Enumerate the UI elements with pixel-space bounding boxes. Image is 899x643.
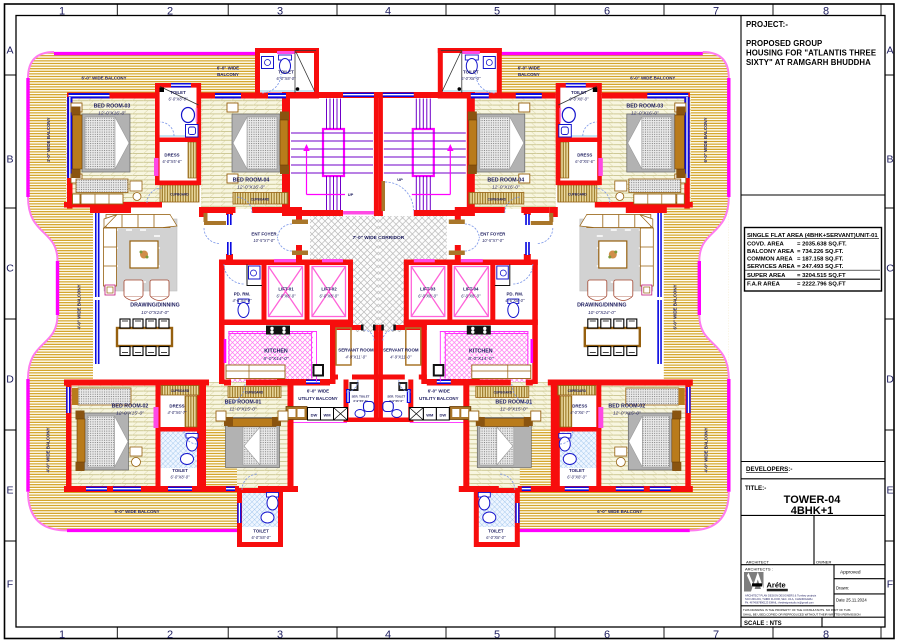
svg-text:11'-0"X15'-0": 11'-0"X15'-0" — [229, 407, 257, 413]
svg-text:SER. TOILET: SER. TOILET — [352, 395, 370, 399]
svg-text:LIFT-04: LIFT-04 — [463, 287, 479, 292]
svg-text:3: 3 — [277, 629, 283, 641]
svg-text:4'-9"X11'-0": 4'-9"X11'-0" — [345, 355, 367, 360]
svg-text:BED ROOM-04: BED ROOM-04 — [233, 178, 270, 184]
svg-text:ENT FOYER: ENT FOYER — [251, 232, 277, 237]
svg-text:BED ROOM-02: BED ROOM-02 — [112, 404, 149, 410]
svg-text:= 247.493 SQ.FT.: = 247.493 SQ.FT. — [797, 264, 844, 270]
svg-text:= 2222.796 SQ.FT: = 2222.796 SQ.FT — [797, 282, 846, 288]
svg-text:10'-5"X7'-0": 10'-5"X7'-0" — [482, 238, 504, 243]
svg-text:PD. RM.: PD. RM. — [234, 292, 251, 297]
svg-text:4'-0"X6'-7": 4'-0"X6'-7" — [570, 410, 590, 415]
svg-text:5: 5 — [494, 629, 500, 641]
svg-text:UTILITY BALCONY: UTILITY BALCONY — [298, 396, 338, 401]
svg-text:A: A — [886, 45, 893, 57]
svg-text:Aréte: Aréte — [767, 581, 786, 590]
svg-text:F: F — [887, 579, 893, 591]
svg-text:10'-0"X24'-0": 10'-0"X24'-0" — [588, 310, 616, 316]
svg-text:TOILET: TOILET — [569, 468, 585, 473]
svg-text:12'-0"X16'-0": 12'-0"X16'-0" — [98, 111, 126, 117]
svg-text:8'-0"X14'-0": 8'-0"X14'-0" — [468, 356, 493, 362]
svg-text:8'-0"X14'-0": 8'-0"X14'-0" — [264, 356, 289, 362]
svg-text:6'-0" WIDE BALCONY: 6'-0" WIDE BALCONY — [114, 509, 159, 514]
svg-text:4'-0" WIDE BALCONY: 4'-0" WIDE BALCONY — [46, 427, 51, 472]
svg-text:D: D — [886, 374, 894, 386]
svg-text:KITCHEN: KITCHEN — [264, 349, 288, 355]
svg-text:SCALE : NTS: SCALE : NTS — [744, 621, 782, 627]
svg-text:= 3204.515 SQ.FT: = 3204.515 SQ.FT — [797, 273, 846, 279]
svg-text:Drawn:: Drawn: — [836, 586, 849, 591]
svg-text:4BHK+1: 4BHK+1 — [791, 505, 834, 517]
svg-text:PROPOSED GROUP: PROPOSED GROUP — [746, 39, 822, 48]
svg-text:3'-9"X5'-0": 3'-9"X5'-0" — [389, 399, 404, 403]
svg-text:SUPER AREA: SUPER AREA — [747, 273, 786, 279]
svg-text:8: 8 — [823, 6, 829, 18]
svg-text:4: 4 — [385, 629, 391, 641]
svg-text:7: 7 — [713, 629, 719, 641]
svg-text:1: 1 — [59, 629, 65, 641]
svg-text:E: E — [6, 485, 13, 497]
svg-text:PD. RM.: PD. RM. — [507, 292, 524, 297]
svg-text:LIFT-01: LIFT-01 — [278, 287, 294, 292]
svg-text:6'-0"X8'-0": 6'-0"X8'-0" — [486, 535, 506, 540]
svg-text:4'-9"X11'-0": 4'-9"X11'-0" — [390, 355, 412, 360]
svg-text:ARCHITECT PLAN DESIGN DESIGNE: ARCHITECT PLAN DESIGN DESIGNERS & Turnke… — [745, 594, 817, 598]
svg-text:6'-0"X8'-0": 6'-0"X8'-0" — [418, 294, 438, 299]
svg-text:F: F — [7, 579, 13, 591]
svg-text:6'-0"X8'-0": 6'-0"X8'-0" — [276, 76, 296, 81]
svg-text:6'-0"X5'-6": 6'-0"X5'-6" — [162, 159, 182, 164]
svg-text:DW: DW — [311, 413, 318, 418]
svg-text:12'-0"X15'-0": 12'-0"X15'-0" — [116, 411, 144, 417]
svg-text:LIFT-02: LIFT-02 — [321, 287, 337, 292]
svg-text:TITLE:-: TITLE:- — [745, 485, 766, 492]
svg-text:6'-0" WIDE: 6'-0" WIDE — [217, 66, 239, 71]
svg-text:10'-5"X7'-0": 10'-5"X7'-0" — [253, 238, 275, 243]
svg-text:4'-0" WIDE BALCONY: 4'-0" WIDE BALCONY — [77, 284, 82, 329]
svg-text:ARCHITECTS :: ARCHITECTS : — [745, 567, 773, 572]
svg-text:6'-0" WIDE BALCONY: 6'-0" WIDE BALCONY — [81, 76, 126, 81]
svg-text:11'-0"X15'-0": 11'-0"X15'-0" — [500, 407, 528, 413]
svg-text:2: 2 — [167, 629, 173, 641]
svg-text:BED ROOM-01: BED ROOM-01 — [495, 400, 532, 406]
svg-text:= 734.226 SQ.FT.: = 734.226 SQ.FT. — [797, 249, 844, 255]
svg-text:CUPBOARD: CUPBOARD — [568, 193, 587, 197]
svg-text:12'-0"X16'-0": 12'-0"X16'-0" — [631, 111, 659, 117]
svg-text:4'-6"X8'-0": 4'-6"X8'-0" — [232, 298, 252, 303]
svg-text:COMMON AREA: COMMON AREA — [747, 257, 793, 263]
svg-text:WM: WM — [323, 413, 331, 418]
svg-text:CUPBOARD: CUPBOARD — [494, 390, 513, 394]
svg-text:C: C — [886, 263, 894, 275]
svg-text:6'-0" WIDE BALCONY: 6'-0" WIDE BALCONY — [630, 76, 675, 81]
svg-text:BALCONY: BALCONY — [518, 72, 540, 77]
svg-text:DRESS: DRESS — [577, 153, 592, 158]
svg-text:C: C — [6, 263, 14, 275]
svg-text:6'-0" WIDE: 6'-0" WIDE — [518, 66, 540, 71]
svg-text:8: 8 — [823, 629, 829, 641]
svg-text:6'-0" WIDE BALCONY: 6'-0" WIDE BALCONY — [597, 509, 642, 514]
svg-text:DRAWING/DINNING: DRAWING/DINNING — [577, 303, 626, 309]
svg-text:SINGLE FLAT AREA (4BHK+SERVANT: SINGLE FLAT AREA (4BHK+SERVANT)UNIT-01 — [747, 233, 878, 239]
svg-text:6'-0" WIDE: 6'-0" WIDE — [307, 389, 329, 394]
svg-text:6'-0"X8'-0": 6'-0"X8'-0" — [461, 294, 481, 299]
svg-text:10'-0"X24'-0": 10'-0"X24'-0" — [141, 310, 169, 316]
svg-text:6'-0" WIDE BALCONY: 6'-0" WIDE BALCONY — [703, 117, 708, 162]
svg-text:KITCHEN: KITCHEN — [469, 349, 493, 355]
svg-text:3'-9"X5'-0": 3'-9"X5'-0" — [353, 399, 368, 403]
svg-text:5: 5 — [494, 6, 500, 18]
svg-text:6'-0"X8'-0": 6'-0"X8'-0" — [168, 97, 188, 102]
svg-text:TOILET: TOILET — [488, 529, 504, 534]
svg-text:CUPBOARD: CUPBOARD — [568, 389, 587, 393]
svg-text:UP: UP — [348, 192, 354, 197]
svg-text:Ph. 4674567890123 EMAIL: thed: Ph. 4674567890123 EMAIL: thedesignstudio… — [745, 601, 814, 605]
svg-text:6'-0"X8'-0": 6'-0"X8'-0" — [170, 475, 190, 480]
svg-text:4'-0"X6'-7": 4'-0"X6'-7" — [167, 410, 187, 415]
svg-text:Approved: Approved — [840, 570, 861, 576]
svg-text:ARCHITECT: ARCHITECT — [746, 559, 769, 564]
svg-text:TOILET: TOILET — [463, 70, 479, 75]
svg-text:DRESS: DRESS — [169, 404, 184, 409]
svg-text:HOUSING FOR "ATLANTIS THREE: HOUSING FOR "ATLANTIS THREE — [746, 49, 876, 58]
svg-text:SCO 200-201, THIRD FLOOR, SEC.: SCO 200-201, THIRD FLOOR, SEC. 34-A, CHA… — [745, 597, 813, 601]
svg-text:B: B — [886, 154, 893, 166]
svg-text:CUPBOARD: CUPBOARD — [488, 198, 507, 202]
svg-text:4: 4 — [385, 6, 391, 18]
svg-text:6: 6 — [604, 629, 610, 641]
svg-text:UP: UP — [397, 177, 403, 182]
svg-text:3: 3 — [277, 6, 283, 18]
svg-text:4'-0" WIDE BALCONY: 4'-0" WIDE BALCONY — [46, 117, 51, 162]
svg-text:BALCONY AREA: BALCONY AREA — [747, 249, 795, 255]
svg-text:6: 6 — [604, 6, 610, 18]
svg-text:WM: WM — [426, 413, 434, 418]
svg-text:ENT FOYER: ENT FOYER — [480, 232, 506, 237]
svg-text:6'-0"X8'-0": 6'-0"X8'-0" — [569, 97, 589, 102]
svg-text:DRESS: DRESS — [572, 404, 587, 409]
svg-text:CUPBOARD: CUPBOARD — [170, 193, 189, 197]
svg-text:DRESS: DRESS — [164, 153, 179, 158]
svg-text:CUPBOARD: CUPBOARD — [251, 198, 270, 202]
svg-text:7: 7 — [713, 6, 719, 18]
svg-text:6'-0" WIDE BALCONY: 6'-0" WIDE BALCONY — [672, 284, 677, 329]
svg-text:A: A — [6, 45, 13, 57]
svg-text:TOILET: TOILET — [253, 529, 269, 534]
svg-text:TOILET: TOILET — [278, 70, 294, 75]
svg-text:CUPBOARD: CUPBOARD — [171, 389, 190, 393]
svg-text:SERVANT ROOM: SERVANT ROOM — [383, 348, 419, 353]
svg-text:SER. TOILET: SER. TOILET — [387, 395, 405, 399]
svg-text:2: 2 — [167, 6, 173, 18]
svg-text:TOILET: TOILET — [172, 468, 188, 473]
svg-text:6'-0"X8'-0": 6'-0"X8'-0" — [251, 535, 271, 540]
svg-text:12'-0"X16'-0": 12'-0"X16'-0" — [492, 185, 520, 191]
svg-text:BED ROOM-04: BED ROOM-04 — [487, 178, 524, 184]
svg-text:BED ROOM-01: BED ROOM-01 — [225, 400, 262, 406]
svg-text:SERVANT ROOM: SERVANT ROOM — [338, 348, 374, 353]
svg-text:6'-0"X8'-0": 6'-0"X8'-0" — [319, 294, 339, 299]
svg-text:SHALL BE USED,COPIED OR REPRO: SHALL BE USED,COPIED OR REPRODUCED WITHO… — [743, 612, 861, 616]
svg-text:D: D — [6, 374, 14, 386]
svg-text:12'-0"X16'-0": 12'-0"X16'-0" — [237, 185, 265, 191]
svg-text:= 187.158 SQ.FT.: = 187.158 SQ.FT. — [797, 257, 844, 263]
svg-text:BED ROOM-03: BED ROOM-03 — [94, 104, 131, 110]
svg-text:CUPBOARD: CUPBOARD — [245, 390, 264, 394]
svg-text:E: E — [886, 485, 893, 497]
svg-text:6'-0"X8'-0": 6'-0"X8'-0" — [567, 475, 587, 480]
svg-text:OWNER: OWNER — [816, 559, 831, 564]
svg-text:UTILITY BALCONY: UTILITY BALCONY — [419, 396, 459, 401]
svg-text:SIXTY" AT RAMGARH BHUDDHA: SIXTY" AT RAMGARH BHUDDHA — [746, 58, 871, 67]
svg-text:7'-0" WIDE CORRIDOR: 7'-0" WIDE CORRIDOR — [353, 235, 405, 241]
svg-text:PROJECT:-: PROJECT:- — [746, 20, 788, 29]
svg-text:TOILET: TOILET — [170, 90, 186, 95]
svg-text:6'-0"X8'-0": 6'-0"X8'-0" — [461, 76, 481, 81]
svg-text:F.A.R AREA: F.A.R AREA — [747, 282, 781, 288]
svg-text:COVD. AREA: COVD. AREA — [747, 242, 785, 248]
svg-text:= 2035.638 SQ.FT.: = 2035.638 SQ.FT. — [797, 242, 847, 248]
svg-text:BALCONY: BALCONY — [217, 72, 239, 77]
svg-text:LIFT-03: LIFT-03 — [420, 287, 436, 292]
svg-text:6'-0" WIDE: 6'-0" WIDE — [428, 389, 450, 394]
svg-text:DEVELOPERS:-: DEVELOPERS:- — [746, 466, 792, 473]
svg-text:6'-0"X8'-0": 6'-0"X8'-0" — [276, 294, 296, 299]
svg-text:DW: DW — [439, 413, 446, 418]
svg-text:4'-6"X8'-0": 4'-6"X8'-0" — [505, 298, 525, 303]
svg-text:1: 1 — [59, 6, 65, 18]
svg-text:SERVICES AREA: SERVICES AREA — [747, 264, 796, 270]
svg-text:12'-0"X15'-0": 12'-0"X15'-0" — [613, 411, 641, 417]
svg-text:BED ROOM-03: BED ROOM-03 — [626, 104, 663, 110]
svg-text:DRAWING/DINNING: DRAWING/DINNING — [130, 303, 179, 309]
svg-text:6'-0"X5'-6": 6'-0"X5'-6" — [575, 159, 595, 164]
svg-text:BED ROOM-02: BED ROOM-02 — [608, 404, 645, 410]
svg-text:TOILET: TOILET — [571, 90, 587, 95]
svg-text:4'-0" WIDE BALCONY: 4'-0" WIDE BALCONY — [703, 427, 708, 472]
svg-text:Date 25.11.2024: Date 25.11.2024 — [836, 598, 867, 603]
svg-text:B: B — [6, 154, 13, 166]
